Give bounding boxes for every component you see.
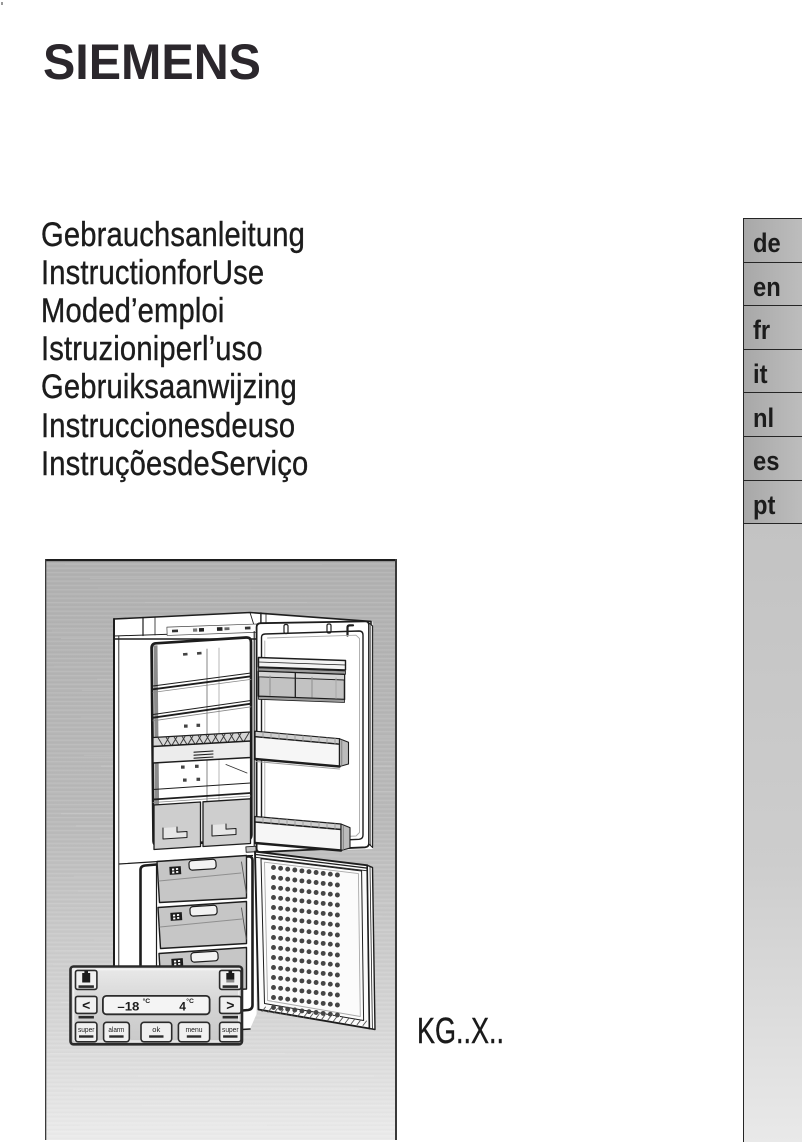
svg-text:ok: ok xyxy=(152,1027,161,1034)
svg-text:menu: menu xyxy=(186,1027,203,1034)
svg-text:–18: –18 xyxy=(117,999,139,1013)
svg-text:<: < xyxy=(82,997,90,1013)
svg-text:>: > xyxy=(226,997,234,1013)
svg-text:°C: °C xyxy=(186,997,194,1005)
svg-text:super: super xyxy=(222,1027,239,1034)
svg-text:super: super xyxy=(78,1027,95,1034)
svg-text:alarm: alarm xyxy=(108,1027,124,1034)
svg-text:4: 4 xyxy=(179,999,186,1013)
svg-text:°C: °C xyxy=(143,997,151,1005)
